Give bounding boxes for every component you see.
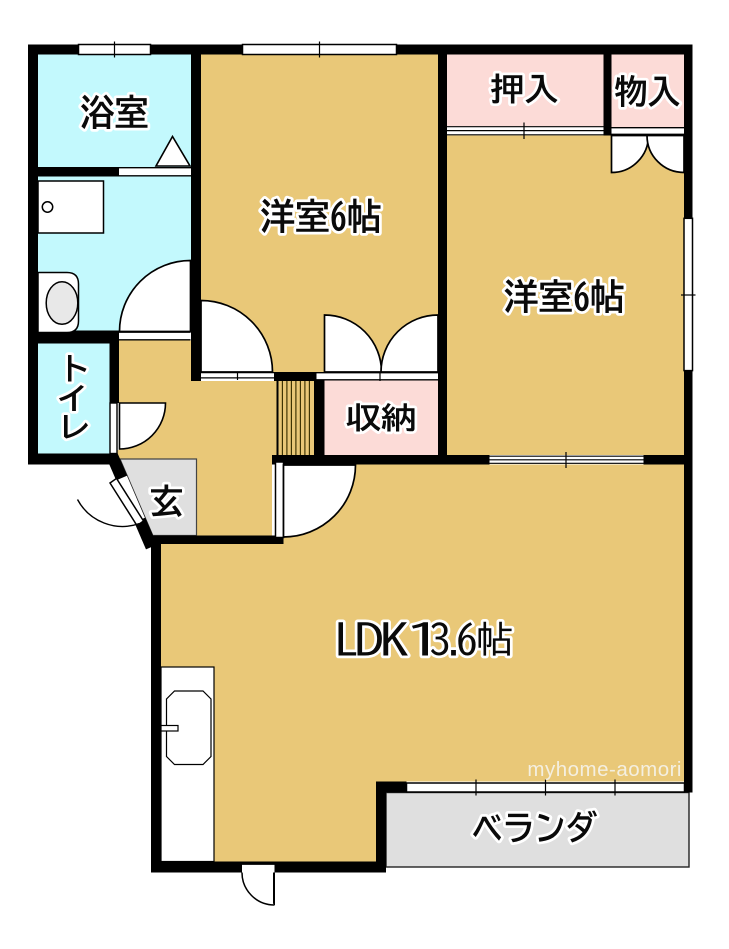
svg-text:myhome-aomori: myhome-aomori xyxy=(527,758,682,781)
